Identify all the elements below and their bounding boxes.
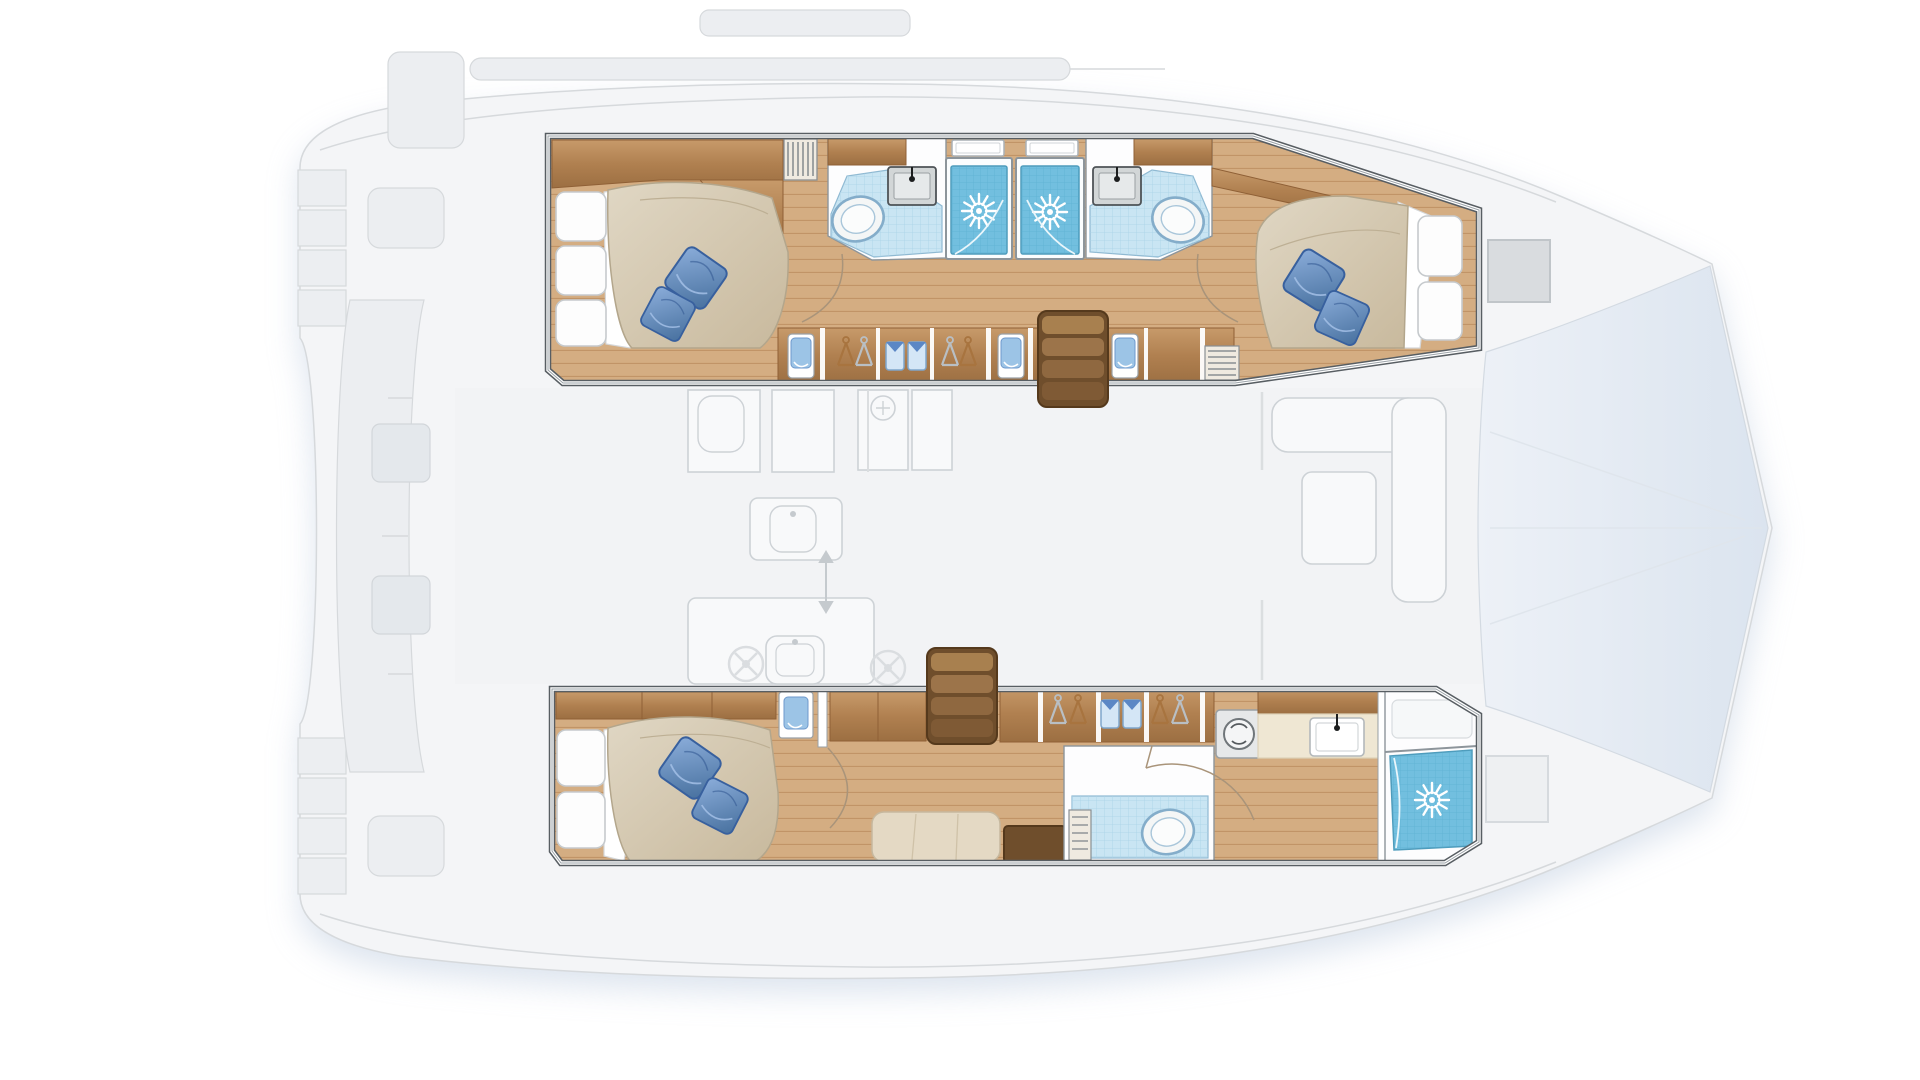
overhead-lockers [556, 692, 776, 719]
cockpit-table-aft [372, 424, 430, 482]
saloon-table [1302, 472, 1376, 564]
engine-hatch-starboard [368, 816, 444, 876]
bow-deck-hatch-starboard [1486, 756, 1548, 822]
shirt-icon [908, 342, 926, 370]
nightstand [779, 692, 813, 738]
louvered-locker [784, 139, 817, 180]
bow-deck-hatch-port [1488, 240, 1550, 302]
sink [1093, 167, 1141, 205]
louvered-vent [1069, 810, 1091, 860]
starboard-hull [552, 686, 1482, 865]
port-hull [548, 136, 1483, 386]
starboard-shower-room [1385, 690, 1477, 861]
washing-machine [1216, 710, 1262, 758]
engine-hatch-port [368, 188, 444, 248]
galley-island [750, 498, 842, 560]
deck-hatch [1026, 140, 1078, 156]
louvered-vent [1205, 346, 1239, 380]
port-aft-shower [946, 140, 1012, 259]
saloon-cabinet [688, 390, 760, 472]
port-fwd-shower [1016, 140, 1084, 259]
head-locker [1134, 139, 1212, 165]
saloon-sofa [1392, 398, 1446, 602]
vanity-sink [1310, 714, 1364, 756]
port-companionway-stairs [1038, 311, 1108, 407]
locker-niche [1112, 334, 1138, 378]
shirt-icon [1101, 700, 1119, 728]
starboard-companionway-stairs [927, 648, 997, 744]
boom [470, 58, 1070, 80]
head-locker [828, 139, 906, 165]
mainsheet-track [700, 10, 910, 36]
shirt-icon [886, 342, 904, 370]
wardrobe-lockers [1000, 686, 1214, 742]
saloon-cabinet-2 [772, 390, 834, 472]
floor-plan-canvas [0, 0, 1920, 1080]
partition [1378, 689, 1385, 863]
partition [818, 689, 827, 747]
locker-niche [998, 334, 1024, 378]
sink [888, 167, 936, 205]
head-cushions [556, 192, 606, 346]
saloon-cabinet-3 [912, 390, 952, 470]
coffee-table [1004, 826, 1066, 863]
shirt-icon [1123, 700, 1141, 728]
cockpit-table-fwd [372, 576, 430, 634]
catamaran-floor-plan [0, 0, 1920, 1080]
helm-station [388, 52, 464, 148]
trampoline [1478, 266, 1768, 792]
cabin-sofa [872, 812, 1000, 862]
port-locker-band [778, 328, 1239, 384]
locker-niche-sink [788, 334, 814, 378]
deck-hatch [952, 140, 1004, 156]
